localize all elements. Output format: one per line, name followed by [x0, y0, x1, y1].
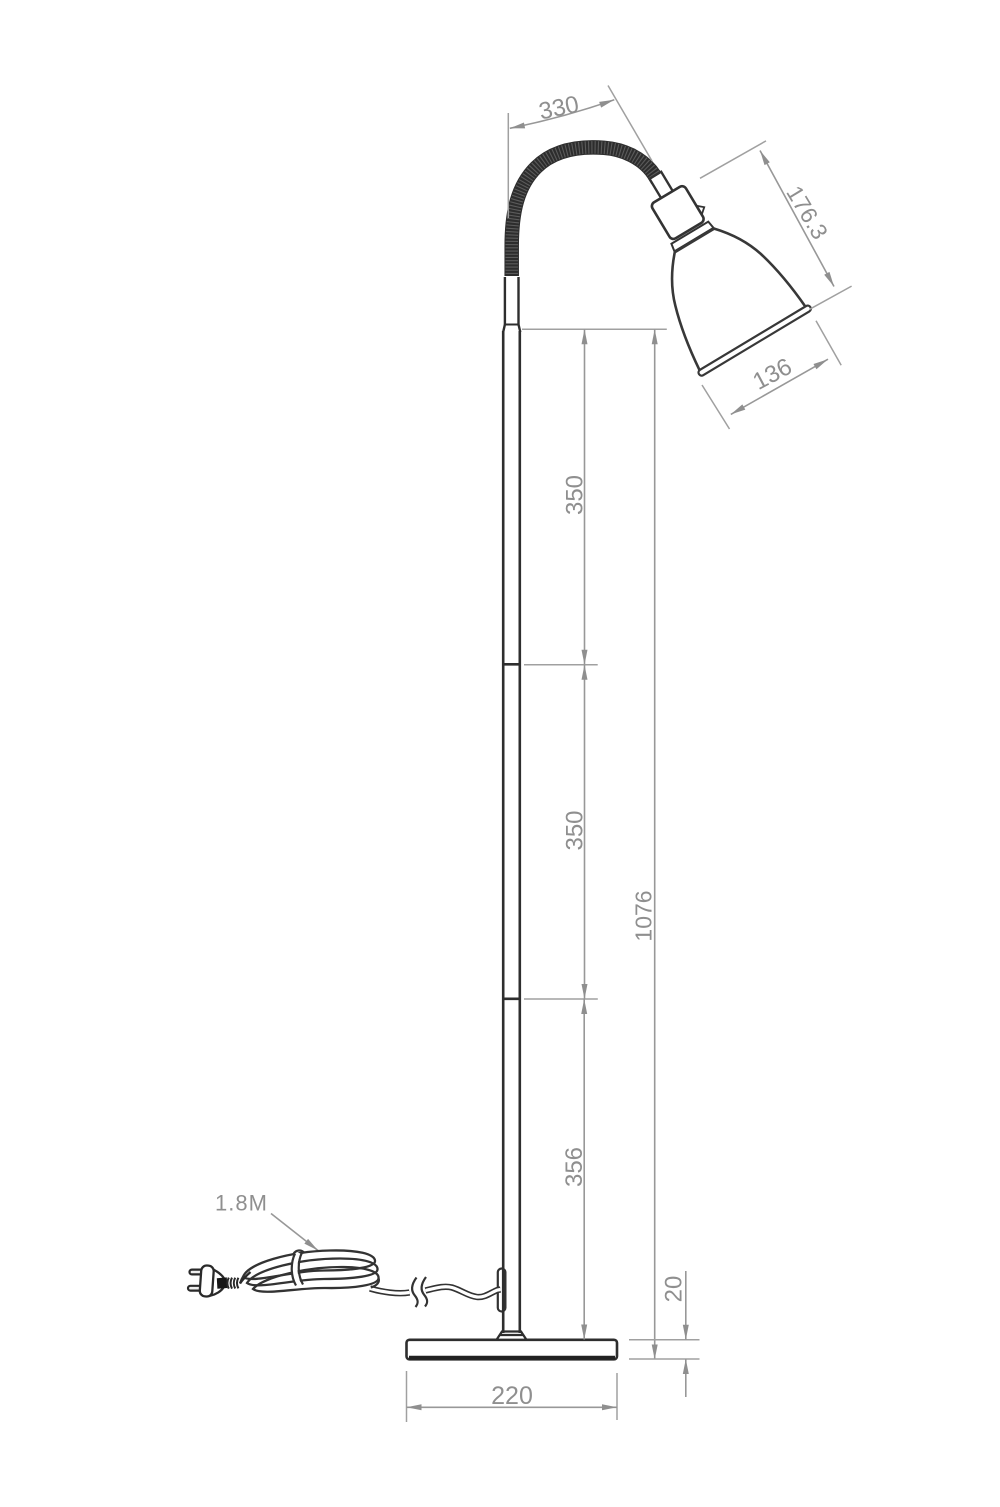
svg-text:1076: 1076: [631, 890, 657, 941]
svg-text:350: 350: [562, 475, 589, 515]
svg-text:1.8M: 1.8M: [215, 1191, 268, 1216]
svg-text:20: 20: [661, 1276, 688, 1303]
svg-text:350: 350: [562, 810, 589, 850]
svg-text:356: 356: [561, 1147, 588, 1187]
svg-text:220: 220: [491, 1382, 533, 1410]
